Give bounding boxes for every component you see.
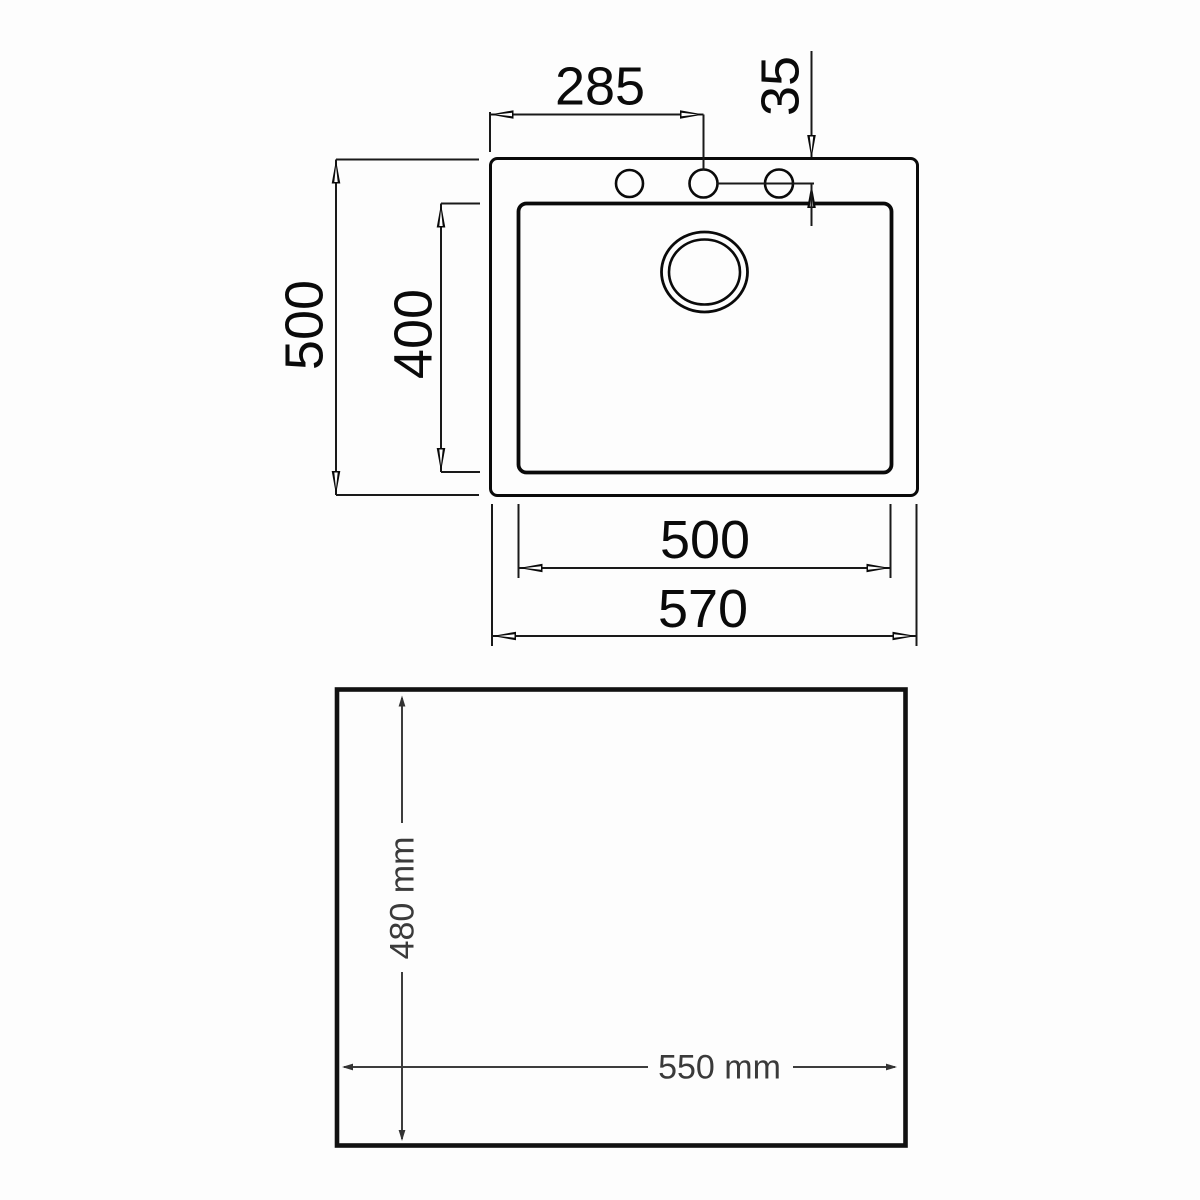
svg-text:550 mm: 550 mm [658,1049,781,1087]
svg-text:400: 400 [384,289,444,379]
svg-text:500: 500 [275,280,335,370]
svg-text:500: 500 [660,510,750,570]
svg-text:480 mm: 480 mm [384,837,422,960]
svg-text:285: 285 [555,57,645,117]
svg-text:570: 570 [658,579,748,639]
svg-text:35: 35 [751,56,811,116]
